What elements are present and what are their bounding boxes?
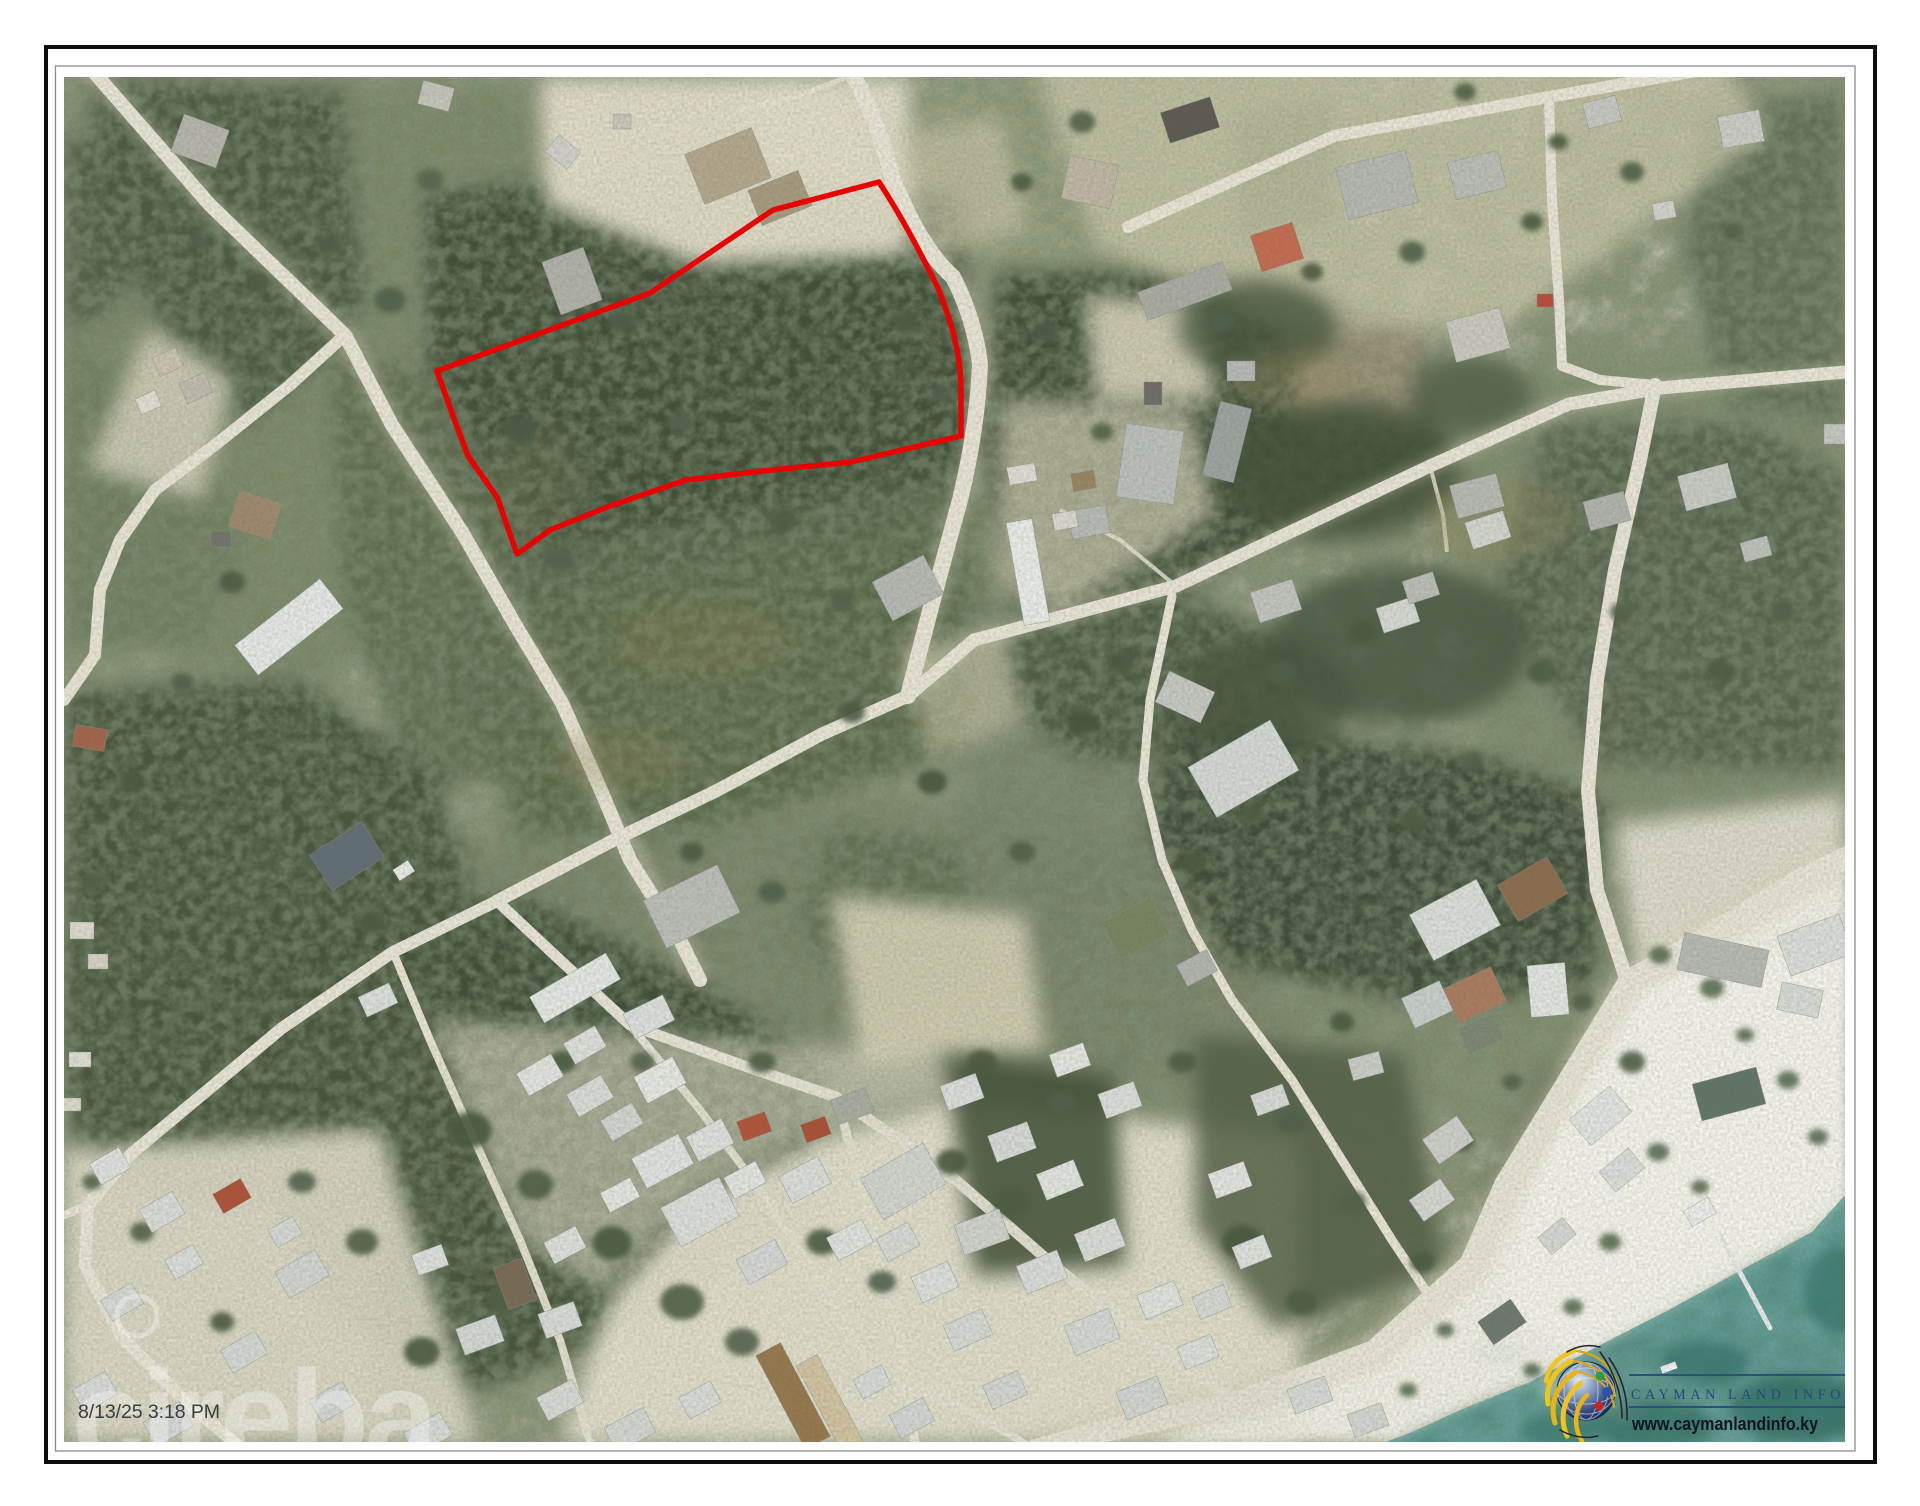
svg-text:www.caymanlandinfo.ky: www.caymanlandinfo.ky	[1631, 1414, 1818, 1434]
svg-text:CAYMAN LAND INFO: CAYMAN LAND INFO	[1631, 1387, 1845, 1403]
svg-text:8/13/25 3:18 PM: 8/13/25 3:18 PM	[78, 1401, 220, 1423]
